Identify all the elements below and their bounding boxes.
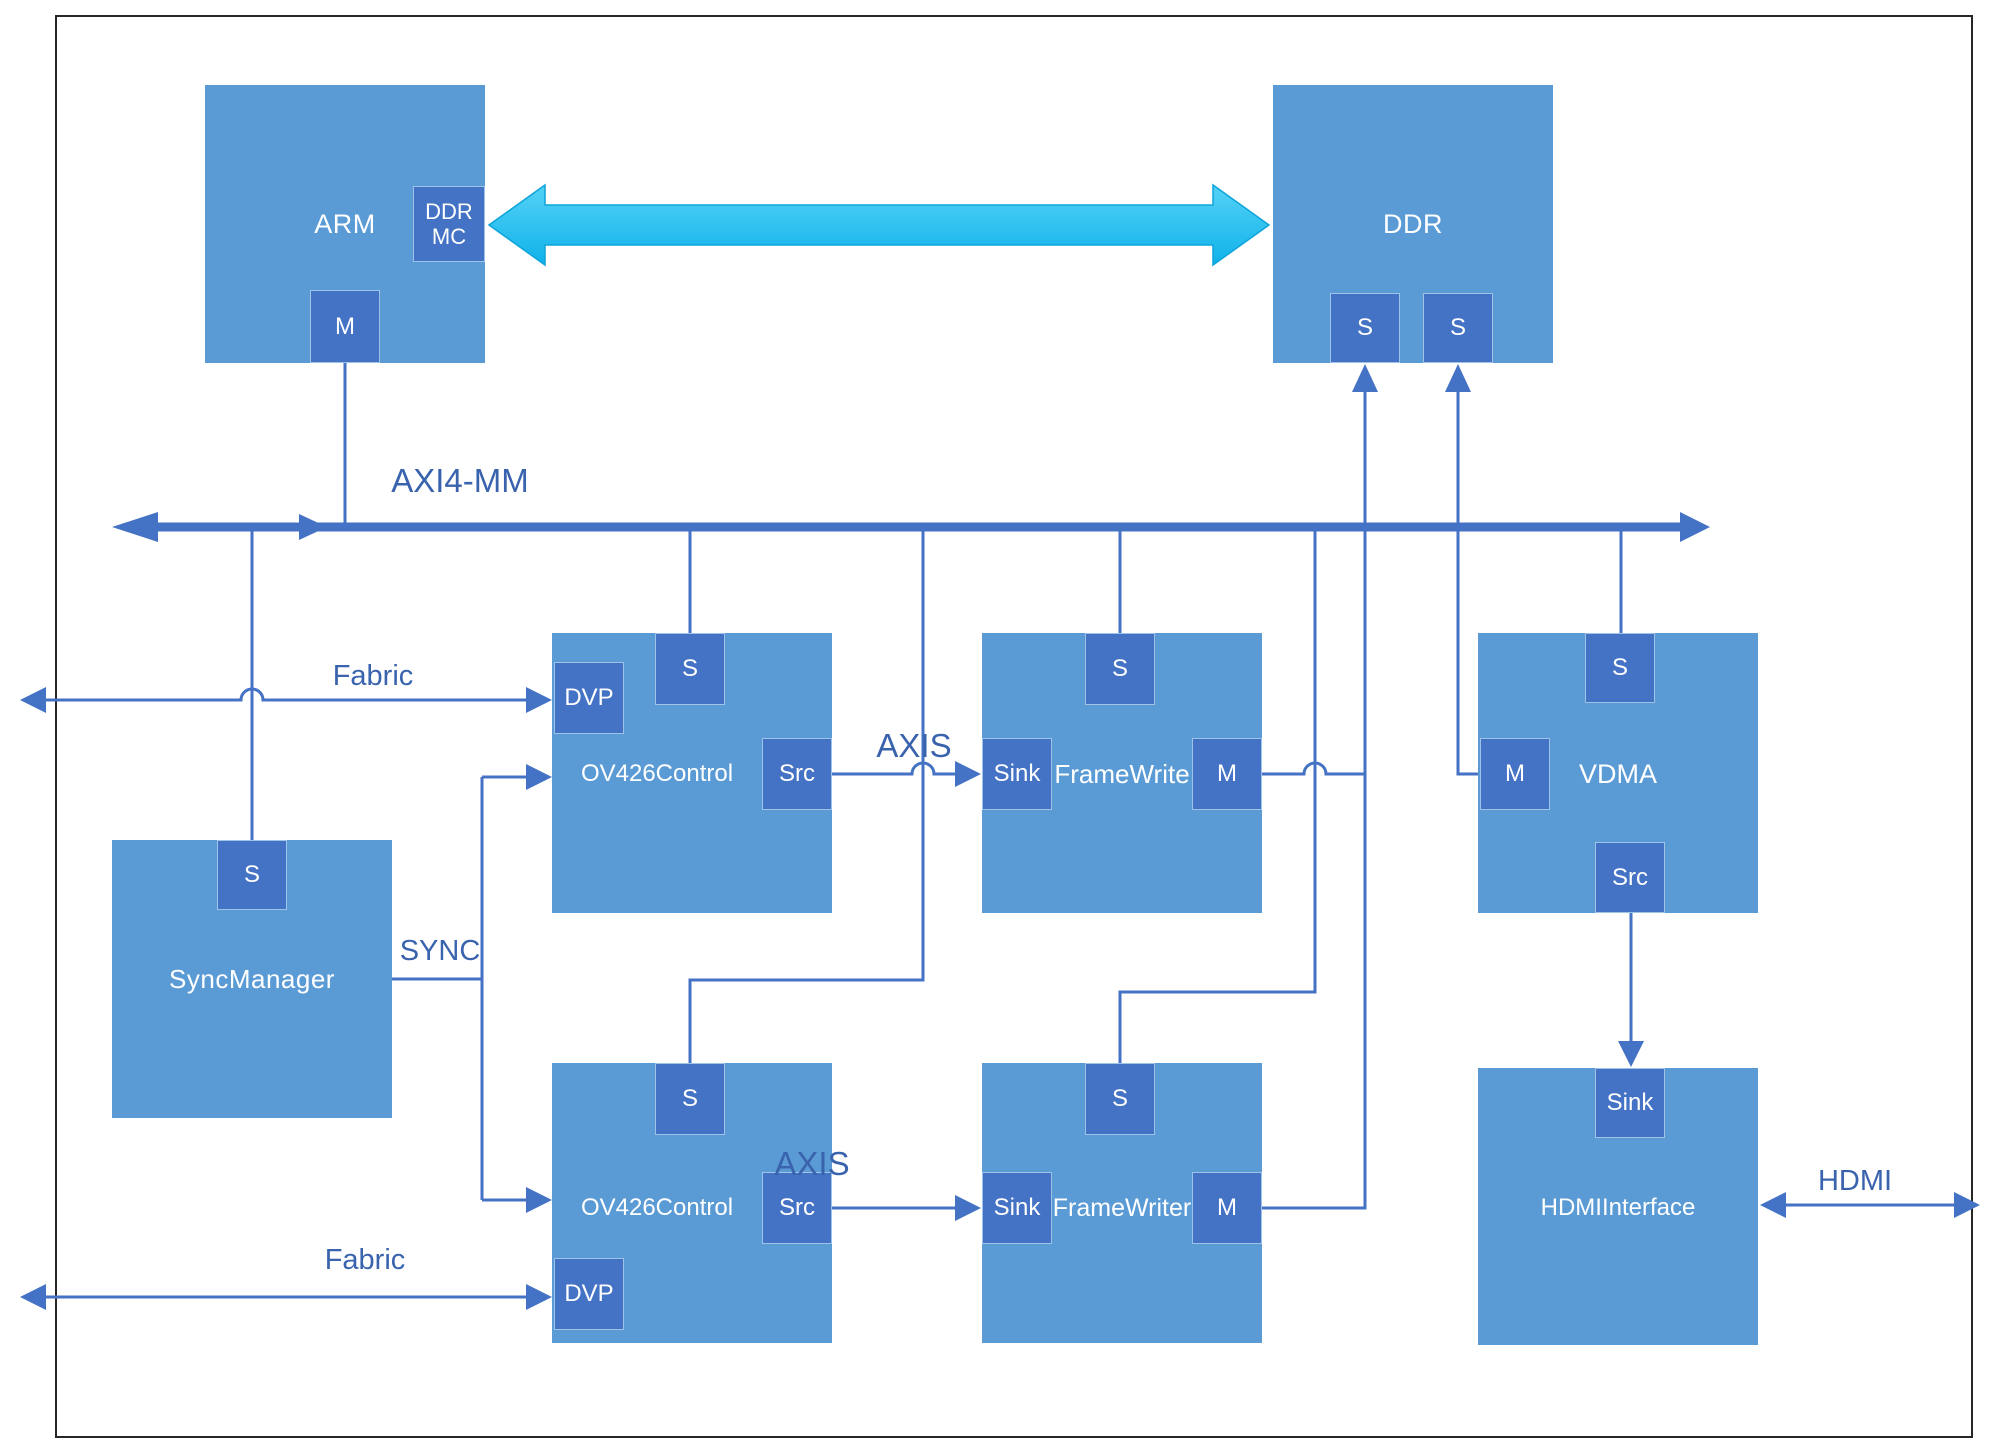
ov426control-bottom-port-dvp: DVP <box>554 1258 624 1330</box>
syncmanager-port-s: S <box>217 840 287 910</box>
framewriter-bottom-label: FrameWriter <box>1052 1172 1192 1244</box>
ov426control-top-port-dvp: DVP <box>554 662 624 734</box>
block-ov426control-bottom: OV426Control S Src DVP <box>552 1063 832 1343</box>
ddr-port-s1: S <box>1330 293 1400 363</box>
ov426control-bottom-label: OV426Control <box>552 1172 762 1244</box>
framewrite-top-port-m: M <box>1192 738 1262 810</box>
bus-left-arrowhead <box>112 512 158 542</box>
memory-double-arrow <box>489 185 1269 265</box>
framewriter-bottom-port-sink: Sink <box>982 1172 1052 1244</box>
ov426control-top-port-src: Src <box>762 738 832 810</box>
fabric-top-left-arrowhead <box>20 687 46 713</box>
block-framewriter-bottom: FrameWriter S Sink M <box>982 1063 1262 1343</box>
sync-lines <box>392 777 528 1200</box>
block-vdma: VDMA S M Src <box>1478 633 1758 913</box>
diagram-canvas: ARM DDR MC M DDR S S SyncManager S OV426… <box>0 0 2000 1450</box>
sync-top-arrowhead <box>526 764 552 790</box>
hdmi-left-arrowhead <box>1760 1192 1786 1218</box>
block-ddr: DDR S S <box>1273 85 1553 363</box>
vdma-port-src: Src <box>1595 842 1665 913</box>
ddr-s1-arrowhead <box>1352 364 1378 392</box>
framewrite-top-label: FrameWrite <box>1052 738 1192 810</box>
ov426control-top-port-s: S <box>655 633 725 705</box>
arm-port-m: M <box>310 290 380 363</box>
block-hdmiinterface: HDMIInterface Sink <box>1478 1068 1758 1345</box>
hdmiinterface-port-sink: Sink <box>1595 1068 1665 1138</box>
vdma-port-m: M <box>1480 738 1550 810</box>
sync-label: SYNC <box>385 933 495 969</box>
ddr-port-s2: S <box>1423 293 1493 363</box>
hdmi-sink-arrowhead <box>1618 1041 1644 1067</box>
fabric-top-right-arrowhead <box>526 687 552 713</box>
framewrite-top-port-s: S <box>1085 633 1155 705</box>
fabric-bottom-label: Fabric <box>275 1242 455 1278</box>
axis-bottom-arrowhead <box>955 1195 981 1221</box>
axis-top-label: AXIS <box>844 726 984 766</box>
vdma-port-s: S <box>1585 633 1655 703</box>
block-syncmanager: SyncManager S <box>112 840 392 1118</box>
vdma-label: VDMA <box>1548 738 1688 810</box>
axi4-mm-bus-label: AXI4-MM <box>340 460 580 502</box>
ov426control-bottom-port-s: S <box>655 1063 725 1135</box>
bus-right-arrowhead <box>1680 512 1710 542</box>
framewrite-top-port-sink: Sink <box>982 738 1052 810</box>
hdmiinterface-label: HDMIInterface <box>1478 1180 1758 1236</box>
arm-port-ddr-mc: DDR MC <box>413 186 485 262</box>
block-ov426control-top: OV426Control S DVP Src <box>552 633 832 913</box>
ddr-s2-arrowhead <box>1445 364 1471 392</box>
fabric-bottom-left-arrowhead <box>20 1284 46 1310</box>
ov426control-top-label: OV426Control <box>552 738 762 810</box>
axis-bottom-label: AXIS <box>742 1144 882 1184</box>
hdmi-right-arrowhead <box>1954 1192 1980 1218</box>
block-framewrite-top: FrameWrite S Sink M <box>982 633 1262 913</box>
fabric-bottom-right-arrowhead <box>526 1284 552 1310</box>
block-arm: ARM DDR MC M <box>205 85 485 363</box>
sync-bottom-arrowhead <box>526 1187 552 1213</box>
framewriter-bottom-port-m: M <box>1192 1172 1262 1244</box>
hdmi-label: HDMI <box>1785 1163 1925 1199</box>
vdma-m-to-ddr-s2 <box>1458 368 1480 774</box>
ddr-label: DDR <box>1273 85 1553 363</box>
bus-mini-arrowhead <box>299 514 327 540</box>
framewriter-bottom-port-s: S <box>1085 1063 1155 1135</box>
fabric-top-label: Fabric <box>283 658 463 694</box>
